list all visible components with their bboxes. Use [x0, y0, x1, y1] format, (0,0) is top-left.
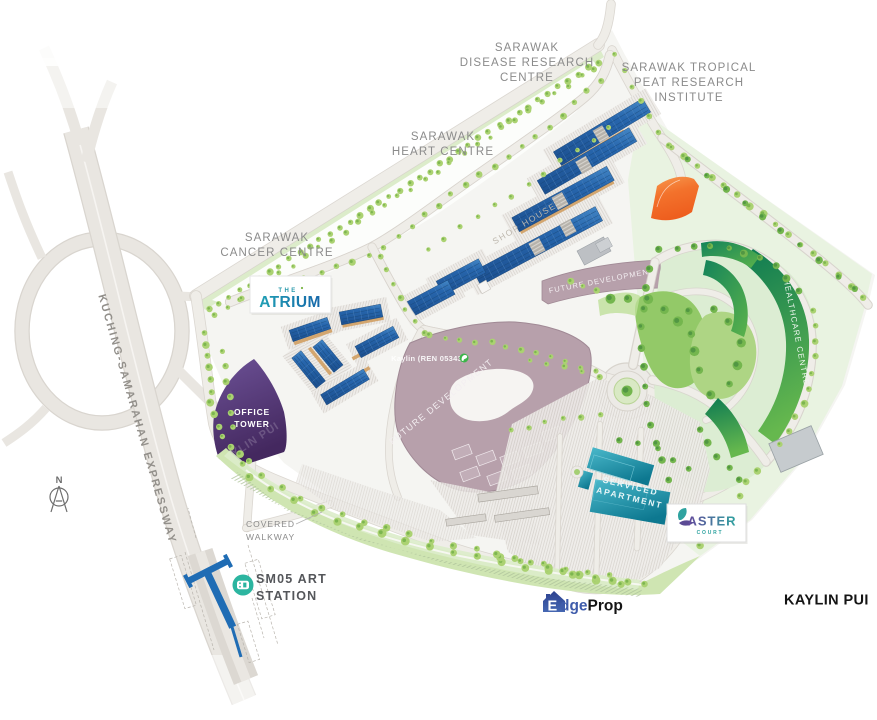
svg-text:HEART CENTRE: HEART CENTRE — [392, 146, 494, 158]
svg-text:CENTRE: CENTRE — [500, 72, 554, 84]
svg-text:SM05 ART: SM05 ART — [256, 572, 327, 586]
svg-text:Prop: Prop — [588, 598, 623, 615]
svg-text:WALKWAY: WALKWAY — [246, 532, 295, 542]
svg-text:SARAWAK: SARAWAK — [495, 42, 559, 54]
svg-text:dge: dge — [560, 598, 588, 615]
svg-text:Kaylin (REN 05343): Kaylin (REN 05343) — [391, 354, 465, 363]
svg-text:E: E — [548, 599, 558, 615]
svg-text:N: N — [56, 475, 63, 486]
svg-text:CANCER CENTRE: CANCER CENTRE — [220, 247, 333, 259]
svg-text:COVERED: COVERED — [246, 519, 295, 529]
svg-text:DISEASE RESEARCH: DISEASE RESEARCH — [460, 57, 595, 69]
svg-text:SARAWAK: SARAWAK — [411, 131, 475, 143]
svg-text:ATRIUM: ATRIUM — [259, 294, 321, 311]
svg-text:SARAWAK: SARAWAK — [245, 232, 309, 244]
svg-text:PEAT RESEARCH: PEAT RESEARCH — [634, 77, 744, 89]
svg-text:STATION: STATION — [256, 589, 317, 603]
svg-text:SARAWAK TROPICAL: SARAWAK TROPICAL — [622, 62, 757, 74]
svg-text:ASTER: ASTER — [687, 514, 736, 529]
svg-text:KAYLIN PUI: KAYLIN PUI — [784, 593, 869, 609]
svg-text:COURT: COURT — [697, 530, 724, 536]
svg-text:OFFICE: OFFICE — [234, 407, 270, 417]
svg-text:INSTITUTE: INSTITUTE — [654, 92, 723, 104]
